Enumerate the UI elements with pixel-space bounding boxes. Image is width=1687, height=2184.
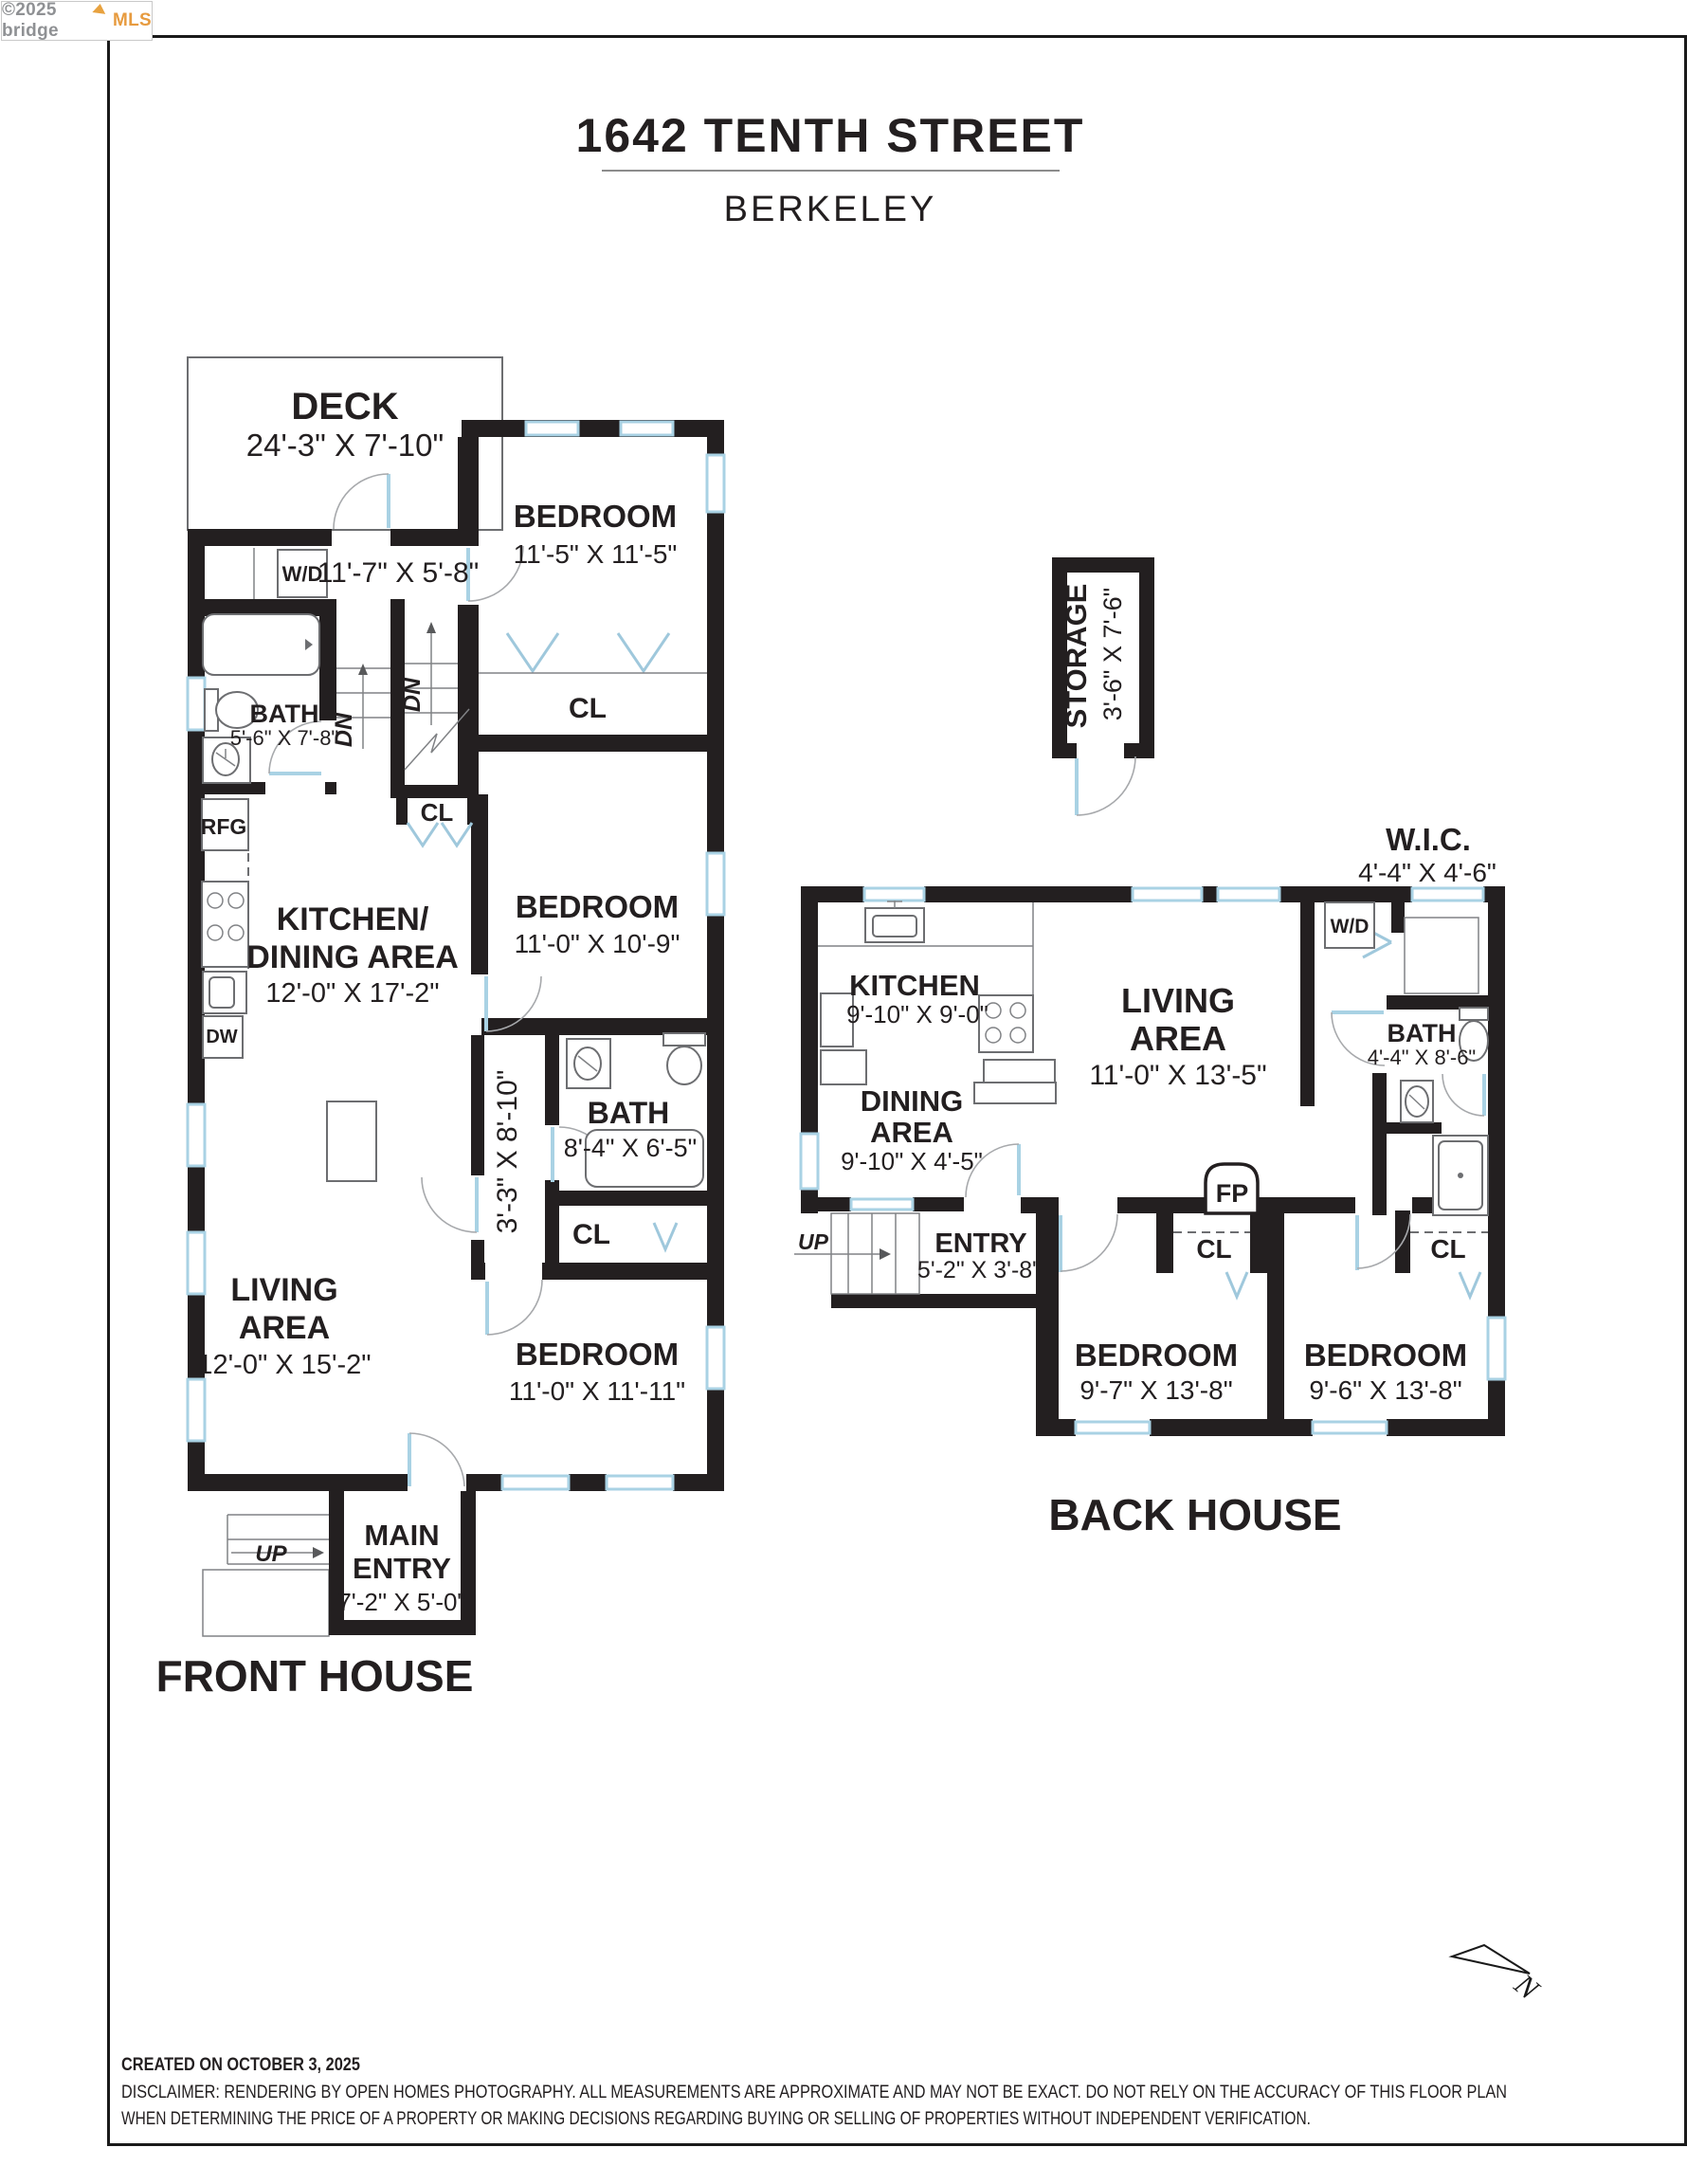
main-entry-label-1: MAIN — [364, 1519, 439, 1552]
back-kitchen-dims: 9'-10" X 9'-0" — [846, 1000, 989, 1028]
back-wd-label: W/D — [1331, 916, 1370, 937]
back-bedroom2-dims: 9'-6" X 13'-8" — [1309, 1375, 1461, 1405]
back-bedroom2-label: BEDROOM — [1304, 1338, 1467, 1373]
kitchen-label-2: DINING AREA — [246, 939, 459, 975]
front-house-walls — [188, 420, 724, 1635]
floor-plan-svg: 1642 TENTH STREET BERKELEY — [0, 0, 1687, 2184]
living-label-2: AREA — [239, 1310, 330, 1346]
up-label-front: UP — [255, 1541, 287, 1567]
back-living-label-1: LIVING — [1121, 981, 1235, 1020]
front-house-title: FRONT HOUSE — [156, 1651, 474, 1701]
hall-dims: 3'-3" X 8'-10" — [492, 1070, 523, 1234]
north-arrow-icon: N — [1439, 1917, 1547, 2007]
kitchen-dims: 12'-0" X 17'-2" — [265, 978, 439, 1009]
back-entry-label: ENTRY — [934, 1228, 1026, 1259]
hall-closet-label: CL — [421, 798, 454, 827]
front-steps — [203, 1515, 329, 1636]
footer-created: CREATED ON OCTOBER 3, 2025 — [121, 2055, 360, 2075]
up-label-back: UP — [798, 1229, 829, 1254]
bedroom2-dims: 11'-0" X 10'-9" — [515, 929, 680, 958]
back-bedroom1-label: BEDROOM — [1075, 1338, 1238, 1373]
back-kitchen-label: KITCHEN — [849, 969, 980, 1002]
kitchen-label-1: KITCHEN/ — [277, 901, 429, 937]
north-label: N — [1508, 1966, 1548, 2007]
back-house-title: BACK HOUSE — [1048, 1490, 1341, 1539]
back-bed1-closet-label: CL — [1196, 1234, 1231, 1264]
back-bedroom1-dims: 9'-7" X 13'-8" — [1079, 1375, 1232, 1405]
bath2-sink-icon — [567, 1039, 610, 1088]
back-dining-label-1: DINING — [861, 1084, 964, 1118]
back-living-dims: 11'-0" X 13'-5" — [1089, 1060, 1266, 1091]
bedroom1-closet-label: CL — [569, 693, 607, 724]
back-bath-dims: 4'-4" X 8'-6" — [1368, 1046, 1477, 1069]
storage-dims: 3'-6" X 7'-6" — [1098, 588, 1127, 721]
back-bath-label: BATH — [1388, 1019, 1457, 1047]
storage-unit: STORAGE 3'-6" X 7'-6" — [1052, 557, 1154, 815]
back-dining-dims: 9'-10" X 4'-5" — [841, 1147, 983, 1175]
back-bath-sink-icon — [1401, 1081, 1433, 1122]
page-subtitle: BERKELEY — [724, 190, 937, 229]
deck-dims: 24'-3" X 7'-10" — [246, 428, 444, 463]
footer-disclaimer-2: WHEN DETERMINING THE PRICE OF A PROPERTY… — [121, 2109, 1311, 2129]
back-kitchen-sink-icon — [865, 901, 924, 942]
page-title: 1642 TENTH STREET — [576, 109, 1085, 162]
bathtub-icon — [203, 614, 319, 675]
back-bed2-closet-label: CL — [1430, 1234, 1465, 1264]
dn-label-1: DN — [399, 677, 426, 712]
shower-icon — [1433, 1136, 1488, 1215]
footer-disclaimer-1: DISCLAIMER: RENDERING BY OPEN HOMES PHOT… — [121, 2083, 1507, 2102]
bedroom2-label: BEDROOM — [516, 889, 679, 924]
floor-plan-page: ©2025 bridgeMLS 1642 TENTH STREET BERKEL… — [0, 0, 1687, 2184]
main-entry-dims: 7'-2" X 5'-0" — [337, 1588, 465, 1616]
rfg-label: RFG — [201, 814, 247, 839]
back-living-label-2: AREA — [1130, 1019, 1226, 1058]
dn-label-2: DN — [331, 712, 357, 747]
deck-label: DECK — [291, 386, 398, 428]
wic-dims: 4'-4" X 4'-6" — [1358, 858, 1497, 887]
fp-label: FP — [1216, 1179, 1249, 1208]
stove-icon — [202, 853, 248, 969]
kitchen-sink-icon — [203, 972, 246, 1013]
dw-label: DW — [206, 1027, 237, 1047]
bedroom1-dims: 11'-5" X 11'-5" — [514, 539, 678, 569]
living-label-1: LIVING — [230, 1272, 337, 1308]
laundry-dims: 11'-7" X 5'-8" — [317, 557, 480, 589]
back-entry-dims: 5'-2" X 3'-8" — [917, 1257, 1041, 1283]
living-dims: 12'-0" X 15'-2" — [197, 1350, 371, 1380]
back-house: STORAGE 3'-6" X 7'-6" — [794, 557, 1505, 1539]
fireplace-icon: FP — [1206, 1164, 1258, 1213]
bath2-closet-label: CL — [572, 1219, 610, 1250]
bath1-label: BATH — [250, 700, 319, 728]
storage-label: STORAGE — [1060, 584, 1093, 729]
bedroom3-label: BEDROOM — [516, 1337, 679, 1372]
kitchen-table — [327, 1101, 376, 1181]
bath2-label: BATH — [588, 1096, 670, 1130]
bath2-toilet-icon — [663, 1033, 705, 1084]
bedroom3-dims: 11'-0" X 11'-11" — [509, 1376, 685, 1406]
bedroom1-label: BEDROOM — [514, 499, 677, 534]
back-dining-label-2: AREA — [870, 1116, 953, 1149]
bath2-dims: 8'-4" X 6'-5" — [564, 1134, 698, 1162]
bath1-dims: 5'-6" X 7'-8" — [230, 726, 339, 750]
wic-floor — [1405, 918, 1478, 993]
wic-label: W.I.C. — [1386, 822, 1471, 857]
main-entry-label-2: ENTRY — [353, 1552, 451, 1585]
front-house: DECK 24'-3" X 7'-10" W/D 11'-7" X 5'-8" … — [156, 357, 724, 1701]
